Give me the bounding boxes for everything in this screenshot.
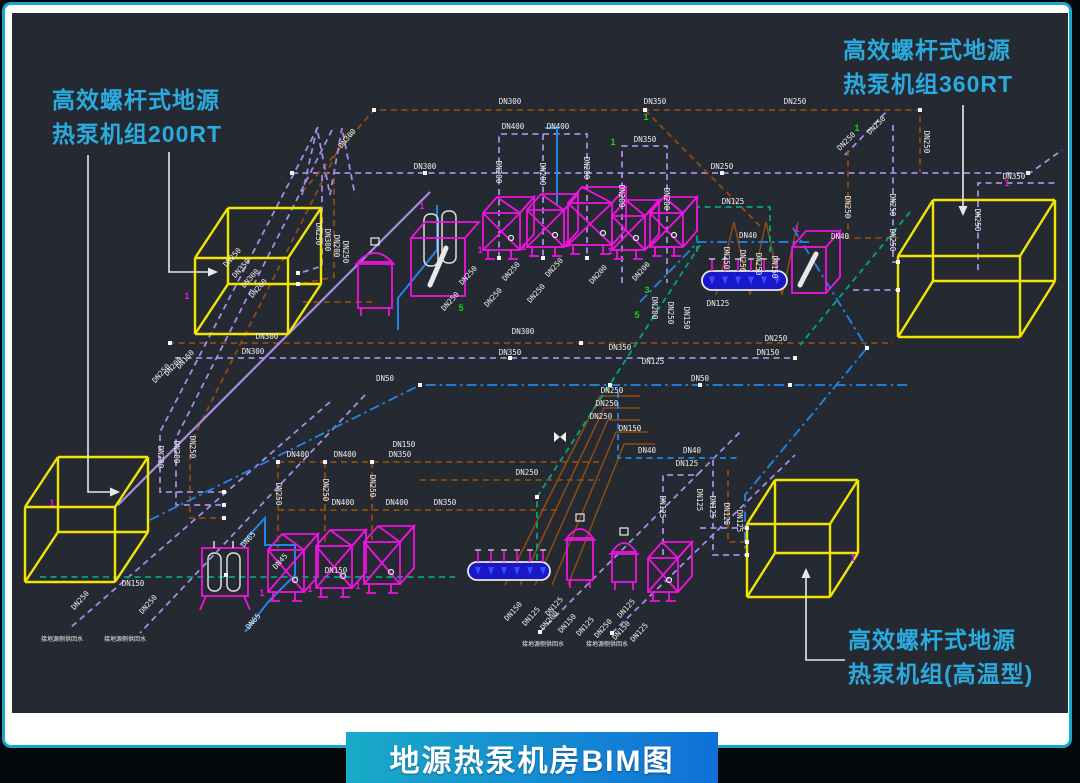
pipe-label: DN200 bbox=[587, 263, 609, 286]
pump-legs bbox=[529, 247, 562, 256]
pipe-label: DN125 bbox=[708, 496, 717, 519]
green-marker: 1 bbox=[610, 137, 615, 147]
side-unit-core bbox=[800, 254, 816, 285]
callout-leader bbox=[169, 152, 210, 272]
pipe-label: DN250 bbox=[516, 468, 539, 477]
magenta-marker: 1 bbox=[49, 498, 54, 508]
valve-icon bbox=[554, 432, 566, 442]
pipe-label: DN40 bbox=[683, 446, 702, 455]
pipe-node bbox=[222, 490, 226, 494]
pipe-label: DN200 bbox=[650, 297, 659, 320]
pipe-label: DN150 bbox=[770, 256, 779, 279]
heat-pump-unit-box bbox=[898, 200, 933, 256]
pipe-label: DN40 bbox=[831, 232, 850, 241]
pipe-label: DN150 bbox=[393, 440, 416, 449]
pipe-label: DN300 bbox=[499, 97, 522, 106]
callout-unit-360rt: 热泵机组360RT bbox=[843, 71, 1013, 97]
pipe-node bbox=[745, 553, 749, 557]
pipe-node bbox=[370, 460, 374, 464]
pump-legs bbox=[614, 250, 643, 259]
pipe-label: DN250 bbox=[888, 194, 897, 217]
pipe bbox=[302, 110, 920, 192]
magenta-marker: 1 bbox=[259, 588, 264, 598]
pipe-label: DN250 bbox=[137, 593, 159, 616]
pipe-label: DN125 bbox=[628, 621, 650, 644]
pump-port bbox=[601, 231, 606, 236]
heat-pump-unit-box bbox=[1020, 200, 1055, 256]
pipe-label: DN250 bbox=[596, 399, 619, 408]
pipe-label: DN250 bbox=[368, 475, 377, 498]
duplex-legs bbox=[200, 596, 250, 610]
pipe-label: DN250 bbox=[500, 260, 522, 283]
leader-arrow-icon bbox=[802, 568, 811, 578]
pipe-label: DN125 bbox=[707, 299, 730, 308]
heat-pump-unit-box bbox=[830, 480, 858, 524]
magenta-marker: 1 bbox=[1004, 178, 1009, 188]
pipe-label: DN300 bbox=[323, 229, 332, 252]
pipe-node bbox=[585, 256, 589, 260]
pipe-label: DN150 bbox=[619, 424, 642, 433]
pipe-label: DN125 bbox=[658, 496, 667, 519]
pipe-label: DN250 bbox=[711, 162, 734, 171]
pipe-label: DN250 bbox=[69, 589, 91, 612]
leader-arrow-icon bbox=[208, 268, 218, 277]
heat-pump-unit-box bbox=[25, 532, 58, 582]
pipe-label: DN250 bbox=[754, 253, 763, 276]
pipe-label: DN250 bbox=[666, 302, 675, 325]
magenta-marker: 1 bbox=[850, 553, 855, 563]
pump-legs bbox=[570, 245, 610, 254]
pipe-label: DN250 bbox=[601, 386, 624, 395]
bim-drawing: DN300DN350DN250DN300DN250DN300DN250DN400… bbox=[12, 13, 1068, 713]
pipe bbox=[140, 395, 365, 633]
pipe-label: DN65 bbox=[244, 612, 263, 631]
pump-top-x bbox=[378, 526, 400, 542]
pipe-label: DN250 bbox=[835, 130, 858, 153]
tank-legs bbox=[361, 308, 389, 316]
pipe-label: DN250 bbox=[188, 436, 197, 459]
pipe-label: DN250 bbox=[457, 264, 479, 287]
pipe-label: DN65 bbox=[239, 530, 258, 549]
pipe-node bbox=[745, 526, 749, 530]
heat-pump-unit-box bbox=[195, 208, 228, 258]
pipe-label: DN250 bbox=[765, 334, 788, 343]
pipe bbox=[398, 205, 437, 330]
pipe-label: DN350 bbox=[609, 343, 632, 352]
pipe-label: DN125 bbox=[722, 503, 731, 526]
pipe-label: DN200 bbox=[156, 446, 165, 469]
magenta-marker: 1 bbox=[419, 201, 424, 211]
pipe-label: DN350 bbox=[644, 97, 667, 106]
pipe-label: DN300 bbox=[414, 162, 437, 171]
pipe-node bbox=[290, 171, 294, 175]
pipe-label: DN150 bbox=[325, 566, 348, 575]
pipe-node bbox=[538, 630, 542, 634]
cad-canvas: DN300DN350DN250DN300DN250DN300DN250DN400… bbox=[12, 13, 1068, 713]
tank-legs bbox=[615, 582, 633, 590]
green-marker: 5 bbox=[634, 310, 639, 320]
callout-leader bbox=[806, 572, 845, 660]
pipe-label: DN250 bbox=[722, 247, 731, 270]
pipe-node bbox=[896, 288, 900, 292]
pipe-label: DN45 bbox=[271, 552, 290, 571]
green-marker: 1 bbox=[854, 123, 859, 133]
pipe-node bbox=[788, 383, 792, 387]
pipe-label: DN200 bbox=[494, 161, 503, 184]
green-marker: 3 bbox=[644, 285, 649, 295]
callout-unit-high-temp: 高效螺杆式地源 bbox=[848, 627, 1016, 653]
tank-body bbox=[358, 262, 392, 308]
pipe-label: DN250 bbox=[973, 209, 982, 232]
callout-leader bbox=[88, 155, 112, 492]
pipe-node bbox=[423, 171, 427, 175]
pipe-label: DN350 bbox=[389, 450, 412, 459]
pump-top-x bbox=[282, 534, 304, 550]
pipe-node bbox=[418, 383, 422, 387]
pipe-node bbox=[865, 346, 869, 350]
pipe-label: DN50 bbox=[691, 374, 710, 383]
magenta-marker: 1 bbox=[564, 239, 569, 249]
pipe-label: DN200 bbox=[630, 260, 652, 283]
leader-arrow-icon bbox=[110, 488, 120, 497]
pipe-label: DN350 bbox=[634, 135, 657, 144]
pipe-label: DN250 bbox=[314, 223, 323, 246]
duplex-stubs bbox=[214, 541, 233, 548]
magenta-marker: 1 bbox=[307, 584, 312, 594]
pipe-node bbox=[372, 108, 376, 112]
pipe-label: DN40 bbox=[739, 231, 758, 240]
pipe-label: DN250 bbox=[784, 97, 807, 106]
pipe-node bbox=[323, 460, 327, 464]
slide: DN300DN350DN250DN300DN250DN300DN250DN400… bbox=[0, 0, 1080, 783]
pipe-label: DN400 bbox=[502, 122, 525, 131]
heat-pump-unit-box bbox=[747, 553, 775, 597]
pipe-label: DN400 bbox=[334, 450, 357, 459]
pipe-node bbox=[497, 256, 501, 260]
callout-unit-360rt: 高效螺杆式地源 bbox=[843, 37, 1011, 63]
pipe-node bbox=[535, 495, 539, 499]
tank-body bbox=[567, 538, 593, 580]
pipe-label: DN200 bbox=[332, 235, 341, 258]
pipe-node bbox=[579, 341, 583, 345]
pipe-node bbox=[276, 460, 280, 464]
pump-top-x bbox=[541, 194, 564, 210]
pump-top-x bbox=[626, 200, 645, 216]
pipe-label: DN200 bbox=[617, 185, 626, 208]
heat-pump-unit-box bbox=[1020, 281, 1055, 337]
pipe-label: DN125 bbox=[676, 459, 699, 468]
pipe-node bbox=[168, 341, 172, 345]
pipe-label: DN150 bbox=[757, 348, 780, 357]
pipe-node bbox=[296, 271, 300, 275]
pipe-label: DN250 bbox=[590, 412, 613, 421]
duplex-cylinder bbox=[227, 553, 240, 591]
pump-side bbox=[683, 197, 697, 247]
heat-pump-unit-box bbox=[288, 284, 321, 334]
pipe-label: DN250 bbox=[738, 250, 747, 273]
pipe-label: DN300 bbox=[512, 327, 535, 336]
magenta-marker: 1 bbox=[355, 581, 360, 591]
pipe-label: DN250 bbox=[865, 114, 888, 137]
pump-top-x bbox=[497, 197, 520, 213]
pump-side bbox=[645, 200, 659, 250]
green-marker: 1 bbox=[643, 112, 648, 122]
pipe-label: DN250 bbox=[274, 483, 283, 506]
pipe bbox=[645, 110, 762, 228]
magenta-marker: 1 bbox=[607, 246, 612, 256]
pipe-label: DN250 bbox=[321, 479, 330, 502]
pipe-label: DN250 bbox=[341, 241, 350, 264]
pump-top-x bbox=[662, 542, 678, 558]
pipe-label: DN300 bbox=[256, 332, 279, 341]
pump-legs bbox=[485, 250, 518, 259]
pipe-label: DN400 bbox=[547, 122, 570, 131]
pipe-label: DN200 bbox=[172, 441, 181, 464]
pipe bbox=[697, 207, 770, 252]
pipe-node bbox=[720, 171, 724, 175]
heat-exchanger-frame-top bbox=[411, 222, 479, 238]
leader-arrow-icon bbox=[959, 206, 968, 216]
heat-pump-unit-box bbox=[115, 457, 148, 507]
pump-legs bbox=[650, 592, 676, 601]
pipe-label: 接地源侧供回水 bbox=[104, 635, 146, 643]
pipe-label: DN400 bbox=[332, 498, 355, 507]
pipe-label: DN350 bbox=[499, 348, 522, 357]
pipe-label: DN250 bbox=[843, 196, 852, 219]
pipe-label: DN50 bbox=[376, 374, 395, 383]
pipe-node bbox=[793, 356, 797, 360]
title-banner-text: 地源热泵机房BIM图 bbox=[390, 736, 675, 780]
pipe-label: DN300 bbox=[242, 347, 265, 356]
pipe-node bbox=[224, 573, 228, 577]
pipe-node bbox=[698, 383, 702, 387]
pipe-label: DN125 bbox=[735, 510, 744, 533]
pipe-label: DN250 bbox=[888, 229, 897, 252]
pipe bbox=[70, 402, 330, 628]
pipe-label: DN150 bbox=[502, 600, 524, 623]
pipe bbox=[612, 455, 795, 633]
pipe-label: DN200 bbox=[662, 188, 671, 211]
pipe-node bbox=[296, 282, 300, 286]
pipe-label: 接地源侧供回水 bbox=[522, 640, 564, 648]
tank-nozzle bbox=[620, 528, 628, 535]
pump-legs bbox=[366, 584, 398, 593]
pipe-node bbox=[918, 108, 922, 112]
pipe-label: DN400 bbox=[287, 450, 310, 459]
pipe-label: DN125 bbox=[615, 597, 637, 620]
pipe-node bbox=[745, 540, 749, 544]
pipe-label: DN125 bbox=[642, 357, 665, 366]
magenta-marker: 1 bbox=[184, 291, 189, 301]
pipe bbox=[150, 385, 908, 520]
green-marker: 5 bbox=[458, 303, 463, 313]
pipe-label: DN250 bbox=[543, 256, 565, 279]
heat-pump-unit-box bbox=[898, 281, 933, 337]
callout-unit-200rt: 热泵机组200RT bbox=[52, 121, 222, 147]
pipe-label: DN40 bbox=[638, 446, 657, 455]
pipe-label: DN200 bbox=[538, 163, 547, 186]
callout-unit-200rt: 高效螺杆式地源 bbox=[52, 87, 220, 113]
pipe-node bbox=[222, 516, 226, 520]
pipe-label: DN150 bbox=[122, 579, 145, 588]
callout-unit-high-temp: 热泵机组(高温型) bbox=[848, 661, 1033, 687]
pipe-label: DN250 bbox=[482, 286, 504, 309]
magenta-marker: 1 bbox=[794, 224, 799, 234]
pipe-label: DN250 bbox=[525, 282, 547, 305]
pipe-node bbox=[896, 260, 900, 264]
pipe-label: DN125 bbox=[722, 197, 745, 206]
pipe-label: DN350 bbox=[434, 498, 457, 507]
pipe-label: DN150 bbox=[682, 307, 691, 330]
magenta-marker: 1 bbox=[521, 242, 526, 252]
title-banner: 地源热泵机房BIM图 bbox=[346, 732, 718, 783]
pipe-label: DN250 bbox=[922, 131, 931, 154]
pipe bbox=[160, 127, 318, 492]
pipe-label: DN125 bbox=[695, 489, 704, 512]
pipe-node bbox=[541, 256, 545, 260]
pipe bbox=[292, 150, 1062, 173]
pump-top-x bbox=[330, 530, 352, 546]
pipe-label: 接地源侧供回水 bbox=[586, 640, 628, 648]
pump-side bbox=[400, 526, 414, 584]
pipe-node bbox=[222, 503, 226, 507]
manifold bbox=[468, 562, 550, 580]
pipe-label: 接地源侧供回水 bbox=[41, 635, 83, 643]
pipe-label: DN200 bbox=[582, 157, 591, 180]
pipe-label: DN400 bbox=[386, 498, 409, 507]
pipe-node bbox=[1026, 171, 1030, 175]
magenta-marker: 1 bbox=[477, 245, 482, 255]
pump-legs bbox=[318, 588, 350, 597]
